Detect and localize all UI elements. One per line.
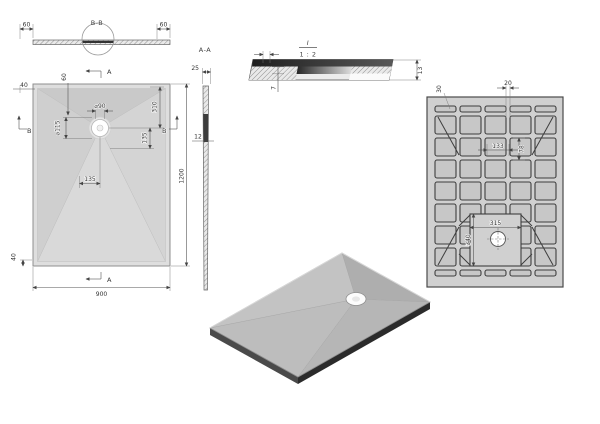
dim-detail-shell: 7 [271,86,278,90]
detail-i-view: I 1 : 2 7 13 [249,39,424,92]
dim-drain-hole-dia: ⌀90 [94,103,105,110]
iso-top-facets [210,253,430,377]
rib-pocket [435,182,456,200]
dim-detail-edge-height: 13 [417,67,424,75]
section-aa-view: A-A 25 12 [191,46,214,290]
section-bb-view: B-B 60 60 [20,19,170,55]
detail-void [349,74,391,81]
dim-bottom-offset: 40 [11,253,18,261]
dim-recess-length: 340 [465,234,472,246]
section-bb-label: B-B [91,19,104,27]
rib-pocket [535,226,556,244]
rib-pocket [435,138,456,156]
section-aa-drain-boss [203,114,208,142]
dim-top-offset: 60 [61,73,68,81]
marker-a-bottom: A [107,276,112,284]
rib-pocket [460,182,481,200]
dim-rib: 20 [504,80,512,87]
section-aa-dims: 25 12 [191,65,214,141]
iso-view [210,253,430,384]
dim-left-offset: 40 [20,82,28,89]
iso-drain-cap [352,296,360,301]
rib-pocket [485,182,506,200]
dim-border: 30 [436,85,443,93]
rib-pocket [510,182,531,200]
dim-aa-thickness: 12 [194,134,202,141]
section-aa-label: A-A [199,46,212,54]
rib-pocket [485,106,506,112]
detail-right-solid [351,67,393,74]
rib-pocket [460,138,481,156]
rib-pocket [510,160,531,178]
section-bb-drain-flange [82,41,114,43]
dim-overall-length: 1200 [179,168,186,183]
rib-pocket [510,106,531,112]
rib-pocket [435,270,456,276]
rib-pocket [535,160,556,178]
detail-left-solid [249,67,298,81]
dim-drain-from-top: 310 [152,101,159,113]
detail-label: I [307,39,309,47]
dim-pocket-pitch: 78 [519,145,526,153]
detail-callout-circle [82,23,114,55]
marker-b-left: B [27,127,31,135]
rib-pocket [535,182,556,200]
dim-drain-bottom: 135 [84,176,96,183]
detail-scale: 1 : 2 [299,51,316,59]
drain-cap [97,125,103,131]
top-view: A A B B 40 60 ⌀90 ⌀115 [11,68,191,298]
rib-pocket [435,160,456,178]
dim-bb-left: 60 [23,22,31,29]
rib-pocket [460,160,481,178]
dim-bb-right: 60 [160,22,168,29]
detail-slope-shell [297,67,353,75]
rib-pocket [510,116,531,134]
rib-pocket [535,270,556,276]
dim-aa-top-width: 25 [191,65,199,72]
rib-pocket [460,270,481,276]
rib-pocket [510,270,531,276]
detail-gelcoat-band [252,60,393,67]
rib-pocket [485,270,506,276]
drawing-sheet: B-B 60 60 A [0,0,600,424]
dim-drain-recess-dia: ⌀115 [55,120,62,135]
rib-pocket [485,160,506,178]
rib-pocket [535,204,556,222]
rib-pocket [435,106,456,112]
rib-pocket [535,106,556,112]
tray-slope-facets [38,89,166,262]
rib-pocket [460,116,481,134]
bottom-view: 30 20 133 78 315 340 [427,80,563,287]
rib-pocket [460,106,481,112]
rib-pocket [485,116,506,134]
dim-pocket-width: 133 [492,143,504,150]
rib-pocket [535,138,556,156]
rib-pocket [435,226,456,244]
dim-overall-width: 900 [96,291,108,298]
marker-a-top: A [107,68,112,76]
rib-pocket [435,204,456,222]
dim-drain-right: 135 [142,132,149,144]
drawing-canvas: B-B 60 60 A [0,0,600,424]
dim-recess-width: 315 [490,220,502,227]
